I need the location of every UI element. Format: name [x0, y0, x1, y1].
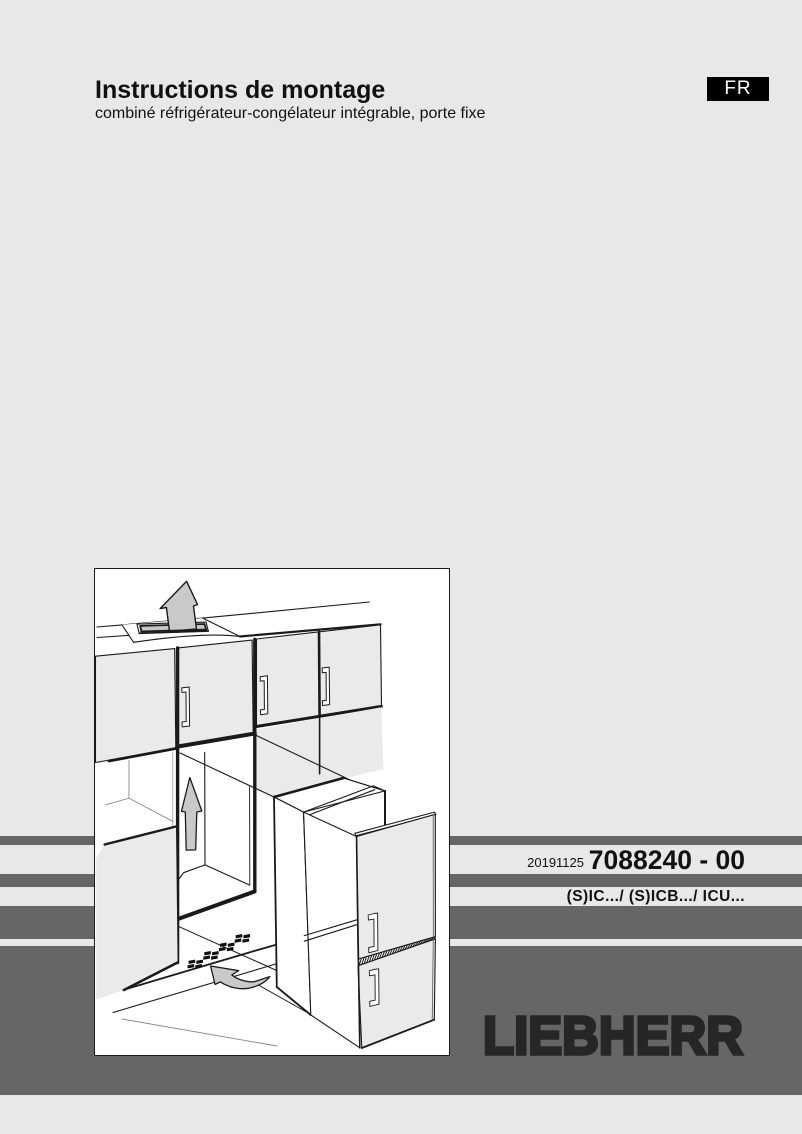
svg-text:LIEBHERR: LIEBHERR: [483, 1008, 743, 1064]
